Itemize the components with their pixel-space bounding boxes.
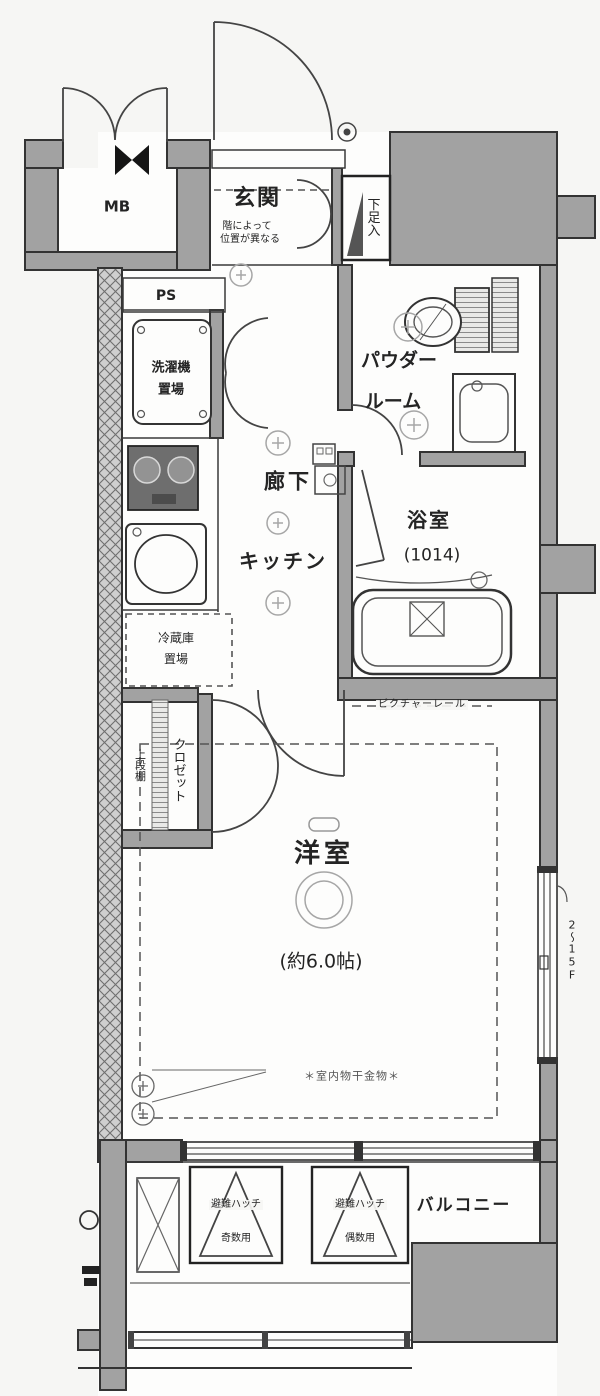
label-shoe-cabinet: 下足入 bbox=[366, 198, 379, 237]
balcony-left-wall bbox=[100, 1140, 126, 1390]
hatched-west-wall bbox=[98, 268, 122, 1140]
window-note-leader bbox=[558, 886, 567, 902]
label-pipe-space: PS bbox=[156, 289, 176, 303]
label-washer-1: 洗濯機 bbox=[151, 362, 190, 375]
label-hatch2-sub: 偶数用 bbox=[345, 1234, 375, 1244]
balcony-corner-block bbox=[412, 1243, 557, 1342]
label-balcony: バルコニー bbox=[417, 1198, 512, 1215]
drain-pipe-icon bbox=[80, 1211, 98, 1229]
label-western-room: 洋室 bbox=[294, 841, 354, 867]
powder-cabinet bbox=[492, 278, 518, 352]
label-window-floor-note: 2〜15F bbox=[567, 919, 578, 982]
label-fridge-1: 冷蔵庫 bbox=[158, 632, 194, 644]
label-hatch1-title: 避難ハッチ bbox=[209, 1200, 263, 1210]
label-hatch1-sub: 奇数用 bbox=[221, 1234, 251, 1244]
label-picture-rail: ピクチャーレール bbox=[376, 700, 468, 710]
label-entrance-note-2: 位置が異なる bbox=[220, 235, 280, 245]
label-western-room-size: (約6.0帖) bbox=[279, 953, 362, 972]
top-right-wall-mass bbox=[390, 132, 557, 265]
floor-plan: MB 玄関 階によって 位置が異なる 下足入 PS 洗濯機 置場 パウダー ルー… bbox=[0, 0, 600, 1396]
label-bathroom: 浴室 bbox=[407, 510, 451, 530]
label-closet: クロゼット bbox=[172, 738, 185, 803]
label-bathroom-size: (1014) bbox=[404, 548, 461, 565]
closet-hanger-pipe bbox=[152, 700, 168, 830]
label-hatch2-title: 避難ハッチ bbox=[333, 1200, 387, 1210]
label-kitchen: キッチン bbox=[239, 551, 327, 571]
south-window bbox=[180, 1141, 540, 1161]
entrance-threshold bbox=[212, 150, 345, 168]
floor-plan-drawing bbox=[0, 0, 600, 1396]
label-entrance: 玄関 bbox=[233, 188, 281, 210]
label-hallway: 廊下 bbox=[264, 472, 312, 493]
label-meter-box: MB bbox=[104, 200, 130, 215]
label-powder-room-1: パウダー bbox=[361, 352, 437, 371]
label-powder-room-2: ルーム bbox=[365, 393, 421, 412]
entrance-door-swing bbox=[214, 22, 332, 140]
label-entrance-note-1: 階によって bbox=[222, 222, 271, 232]
wash-basin bbox=[453, 374, 515, 452]
label-upper-shelf: 上段棚 bbox=[135, 749, 146, 782]
label-fridge-2: 置場 bbox=[164, 653, 188, 665]
label-washer-2: 置場 bbox=[158, 384, 184, 397]
label-laundry-hardware: ＊室内物干金物＊ bbox=[304, 1071, 400, 1082]
east-window bbox=[537, 866, 567, 1064]
closet-fixtures bbox=[152, 700, 168, 830]
